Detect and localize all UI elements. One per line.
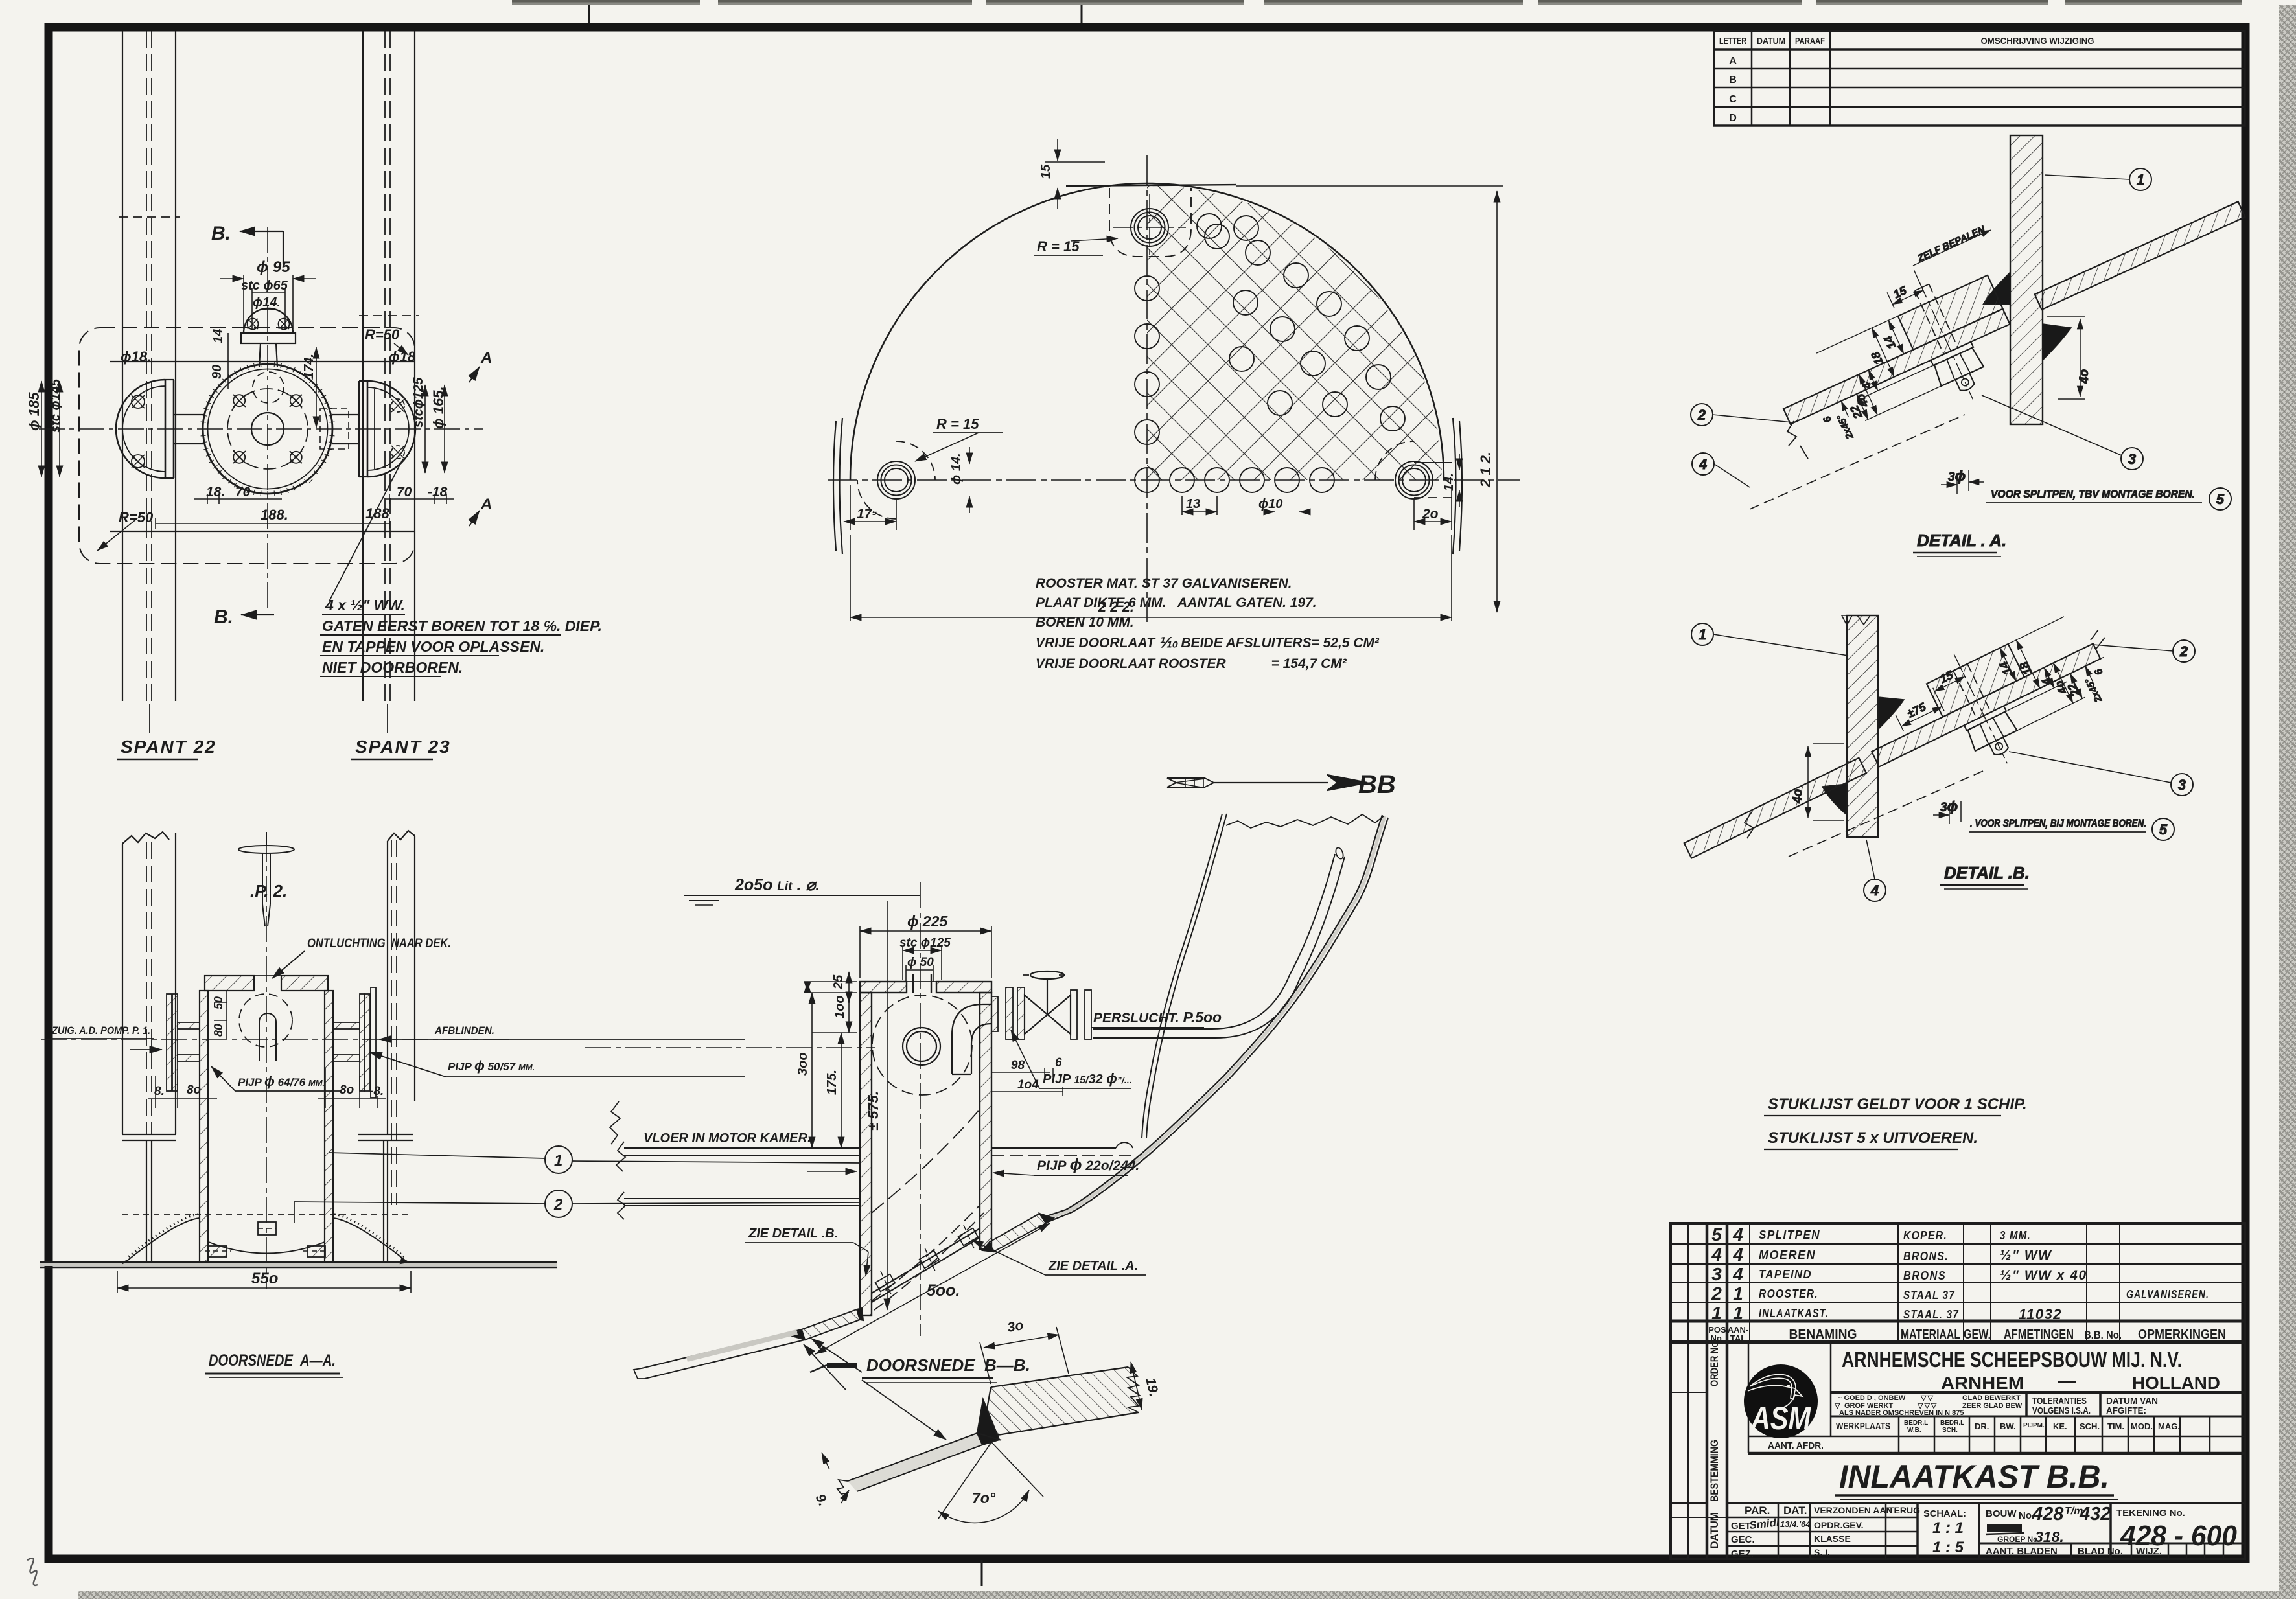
svg-text:14.: 14. (1442, 473, 1456, 491)
svg-text:ZIE DETAIL .B.: ZIE DETAIL .B. (748, 1226, 838, 1241)
svg-text:SPANT 23: SPANT 23 (355, 737, 451, 757)
svg-text:318.: 318. (2035, 1528, 2064, 1545)
svg-text:TIM.: TIM. (2107, 1421, 2124, 1431)
svg-text:SPANT 22: SPANT 22 (121, 737, 216, 757)
svg-text:TEKENING No.: TEKENING No. (2116, 1508, 2185, 1519)
svg-text:DETAIL . A.: DETAIL . A. (1917, 531, 2006, 550)
svg-text:STAAL 37: STAAL 37 (1903, 1289, 1955, 1302)
svg-text:WERKPLAATS: WERKPLAATS (1836, 1421, 1890, 1432)
svg-text:50: 50 (212, 996, 225, 1009)
svg-text:70: 70 (397, 485, 412, 500)
svg-text:BRONS: BRONS (1903, 1269, 1946, 1282)
svg-text:VOLGENS I.S.A.: VOLGENS I.S.A. (2032, 1405, 2091, 1416)
svg-text:ϕ 185: ϕ 185 (26, 392, 42, 431)
svg-text:DETAIL .B.: DETAIL .B. (1944, 863, 2030, 882)
svg-text:stc ϕ125: stc ϕ125 (899, 936, 951, 950)
svg-text:B.B. No.: B.B. No. (2084, 1329, 2122, 1341)
svg-text:ROOSTER MAT. ST 37 GALVANISERE: ROOSTER MAT. ST 37 GALVANISEREN. (1036, 576, 1292, 591)
svg-text:AANT. AFDR.: AANT. AFDR. (1768, 1440, 1824, 1451)
svg-text:PLAAT DIKTE 6 MM. AANTAL GAT: PLAAT DIKTE 6 MM. AANTAL GATEN. 197. (1036, 595, 1317, 610)
svg-text:BOUW: BOUW (1986, 1508, 2017, 1519)
svg-text:stcϕ125: stcϕ125 (412, 377, 426, 428)
svg-text:TAPEIND: TAPEIND (1759, 1268, 1812, 1281)
svg-text:2: 2 (2179, 643, 2188, 660)
svg-text:8.: 8. (154, 1085, 165, 1098)
svg-text:25: 25 (831, 974, 846, 990)
svg-text:BB: BB (1358, 770, 1396, 799)
svg-text:17⁵: 17⁵ (857, 507, 877, 522)
svg-text:2 1 2.: 2 1 2. (1478, 452, 1494, 488)
svg-text:± 575.: ± 575. (865, 1091, 881, 1131)
svg-text:BEDR.L: BEDR.L (1940, 1420, 1964, 1427)
svg-text:1 : 5: 1 : 5 (1932, 1539, 1964, 1556)
svg-text:2: 2 (1711, 1283, 1722, 1304)
svg-text:SCHAAL:: SCHAAL: (1923, 1508, 1966, 1519)
svg-text:BEDR.L: BEDR.L (1904, 1420, 1928, 1427)
svg-text:4o: 4o (1791, 789, 1805, 804)
svg-text:EN TAPPEN VOOR OPLASSEN.: EN TAPPEN VOOR OPLASSEN. (322, 638, 544, 655)
svg-text:4 x ½" WW.: 4 x ½" WW. (325, 597, 405, 614)
svg-text:PIJP ϕ 22o/244.: PIJP ϕ 22o/244. (1037, 1156, 1139, 1174)
svg-text:ARNHEM: ARNHEM (1941, 1373, 2024, 1393)
svg-text:R = 15: R = 15 (1037, 238, 1080, 255)
svg-text:ϕ 225: ϕ 225 (907, 913, 948, 930)
svg-text:. VOOR SPLITPEN, BIJ MONTAGE B: . VOOR SPLITPEN, BIJ MONTAGE BOREN. (1970, 817, 2146, 829)
svg-text:GEW.: GEW. (1964, 1328, 1991, 1342)
svg-text:.P. 2.: .P. 2. (250, 881, 287, 901)
svg-text:4: 4 (1732, 1225, 1743, 1245)
svg-text:R=50: R=50 (365, 327, 400, 343)
svg-text:ORDER No.: ORDER No. (1708, 1340, 1721, 1386)
svg-text:W.B.: W.B. (1907, 1427, 1921, 1434)
svg-text:3ϕ: 3ϕ (1940, 798, 1958, 814)
svg-text:4: 4 (1699, 456, 1707, 472)
svg-text:BESTEMMING: BESTEMMING (1708, 1440, 1721, 1502)
svg-text:PAR.: PAR. (1745, 1504, 1770, 1517)
svg-text:70: 70 (235, 485, 251, 500)
svg-text:GALVANISEREN.: GALVANISEREN. (2126, 1288, 2209, 1301)
svg-text:½" WW: ½" WW (2000, 1248, 2052, 1263)
svg-text:SCH.: SCH. (2080, 1421, 2100, 1431)
svg-text:KE.: KE. (2053, 1421, 2067, 1431)
svg-text:3: 3 (1711, 1264, 1722, 1284)
svg-text:BOREN 10 MM.: BOREN 10 MM. (1036, 615, 1134, 630)
svg-text:ZEER GLAD BEW: ZEER GLAD BEW (1962, 1402, 2023, 1410)
svg-text:AANT. BLADEN: AANT. BLADEN (1986, 1546, 2058, 1557)
svg-text:1 : 1: 1 : 1 (1932, 1519, 1964, 1537)
svg-text:ϕ18.: ϕ18. (121, 349, 151, 365)
svg-text:ALS NADER OMSCHREVEN IN N 875: ALS NADER OMSCHREVEN IN N 875 (1839, 1409, 1964, 1417)
svg-text:stc ϕ65: stc ϕ65 (241, 279, 288, 293)
svg-text:5: 5 (2159, 822, 2168, 838)
svg-text:188.: 188. (261, 507, 288, 523)
svg-text:HOLLAND: HOLLAND (2132, 1373, 2220, 1393)
svg-text:4: 4 (1711, 1245, 1722, 1265)
svg-text:-18: -18 (428, 485, 448, 500)
svg-text:ϕ10: ϕ10 (1258, 497, 1282, 511)
svg-text:ϕ 14.: ϕ 14. (949, 453, 964, 485)
svg-text:MOEREN: MOEREN (1759, 1248, 1816, 1261)
svg-text:DOORSNEDE B―B.: DOORSNEDE B―B. (866, 1355, 1030, 1375)
svg-text:3o: 3o (1006, 1318, 1025, 1335)
svg-text:SCH.: SCH. (1942, 1427, 1958, 1434)
svg-text:PERSLUCHT. P.5oo: PERSLUCHT. P.5oo (1093, 1009, 1222, 1026)
svg-text:3 MM.: 3 MM. (2000, 1229, 2031, 1242)
svg-text:S. I.: S. I. (1814, 1547, 1830, 1558)
svg-text:A: A (480, 349, 492, 367)
svg-text:VERZONDEN AAN: VERZONDEN AAN (1814, 1505, 1893, 1515)
svg-text:ϕ18: ϕ18 (389, 349, 416, 365)
svg-text:—: — (2058, 1370, 2076, 1390)
svg-text:DATUM: DATUM (1757, 36, 1785, 47)
svg-text:INLAATKAST.: INLAATKAST. (1759, 1307, 1829, 1320)
svg-text:OPMERKINGEN: OPMERKINGEN (2138, 1328, 2226, 1342)
svg-text:GROEP No: GROEP No (1997, 1535, 2037, 1544)
svg-text:4: 4 (1870, 882, 1879, 899)
svg-text:R=50: R=50 (119, 509, 154, 525)
svg-text:1: 1 (1699, 627, 1706, 643)
svg-text:MAG.: MAG. (2158, 1421, 2180, 1431)
svg-text:A: A (1729, 56, 1737, 67)
svg-text:▽▽: ▽▽ (1920, 1394, 1934, 1402)
svg-text:3oo: 3oo (796, 1052, 810, 1076)
svg-text:STUKLIJST 5 x UITVOEREN.: STUKLIJST 5 x UITVOEREN. (1768, 1129, 1978, 1147)
svg-text:5: 5 (2216, 491, 2225, 507)
svg-text:2: 2 (553, 1196, 563, 1214)
svg-text:11032: 11032 (2019, 1306, 2062, 1322)
svg-text:1: 1 (2137, 172, 2144, 188)
svg-text:7o°: 7o° (972, 1490, 996, 1506)
svg-text:AFBLINDEN.: AFBLINDEN. (434, 1024, 494, 1037)
svg-text:VRIJE DOORLAAT ROOSTER: VRIJE DOORLAAT ROOSTER = 154,7 CM² (1036, 656, 1347, 671)
svg-text:8o: 8o (340, 1083, 354, 1097)
svg-text:ZUIG. A.D. POMP. P. 1.: ZUIG. A.D. POMP. P. 1. (51, 1024, 150, 1037)
svg-text:GEC.: GEC. (1731, 1534, 1755, 1545)
svg-text:stc ϕ145: stc ϕ145 (49, 378, 63, 433)
svg-text:1: 1 (554, 1152, 562, 1169)
svg-text:GET: GET (1731, 1521, 1751, 1532)
svg-text:GATEN EERST BOREN TOT 18 ℅. DI: GATEN EERST BOREN TOT 18 ℅. DIEP. (322, 617, 602, 634)
svg-text:ϕ 50: ϕ 50 (907, 956, 934, 969)
svg-text:VLOER IN MOTOR KAMER.: VLOER IN MOTOR KAMER. (644, 1131, 811, 1145)
svg-text:BENAMING: BENAMING (1789, 1328, 1857, 1342)
svg-text:BRONS.: BRONS. (1903, 1250, 1949, 1263)
svg-text:18.: 18. (206, 485, 225, 500)
svg-text:13/4.'64: 13/4.'64 (1780, 1519, 1811, 1529)
svg-text:MATERIAAL: MATERIAAL (1901, 1328, 1960, 1342)
svg-text:175.: 175. (825, 1070, 839, 1095)
svg-text:8o: 8o (187, 1083, 201, 1097)
svg-text:BLAD No.: BLAD No. (2078, 1546, 2123, 1557)
svg-text:TERUG: TERUG (1888, 1505, 1920, 1515)
svg-text:OPDR.GEV.: OPDR.GEV. (1814, 1520, 1864, 1530)
svg-text:4: 4 (1732, 1264, 1743, 1284)
svg-text:GLAD BEWERKT: GLAD BEWERKT (1962, 1394, 2021, 1402)
svg-text:4o: 4o (2078, 369, 2091, 384)
svg-text:DR.: DR. (1975, 1421, 1989, 1431)
svg-text:A: A (480, 496, 492, 513)
svg-text:1: 1 (1733, 1303, 1743, 1323)
svg-text:R = 15: R = 15 (936, 416, 979, 432)
svg-text:2: 2 (1697, 407, 1706, 423)
svg-text:-8.: -8. (369, 1085, 384, 1098)
svg-text:C: C (1729, 94, 1737, 105)
svg-text:1oo: 1oo (833, 995, 847, 1018)
svg-text:▽▽▽: ▽▽▽ (1917, 1402, 1938, 1410)
svg-text:ARNHEMSCHE SCHEEPSBOUW MIJ. N.: ARNHEMSCHE SCHEEPSBOUW MIJ. N.V. (1842, 1348, 2182, 1372)
svg-text:NIET DOORBOREN.: NIET DOORBOREN. (322, 659, 463, 676)
svg-text:55o: 55o (251, 1270, 278, 1287)
svg-text:½" WW x 40: ½" WW x 40 (2000, 1268, 2087, 1283)
svg-text:DOORSNEDE A―A.: DOORSNEDE A―A. (209, 1352, 336, 1370)
svg-text:174.: 174. (302, 354, 316, 379)
svg-text:ZIE DETAIL .A.: ZIE DETAIL .A. (1048, 1259, 1138, 1273)
svg-text:3: 3 (2128, 451, 2136, 467)
svg-text:4: 4 (1732, 1245, 1743, 1265)
svg-text:1: 1 (1711, 1303, 1722, 1323)
svg-text:B: B (1729, 75, 1737, 86)
svg-text:3ϕ: 3ϕ (1948, 468, 1966, 484)
svg-text:BW.: BW. (2000, 1421, 2016, 1431)
svg-text:~ GOED D , ONBEW: ~ GOED D , ONBEW (1838, 1394, 1906, 1402)
svg-text:80: 80 (212, 1024, 225, 1037)
svg-text:2o: 2o (1422, 507, 1439, 522)
svg-text:INLAATKAST B.B.: INLAATKAST B.B. (1839, 1458, 2109, 1495)
svg-text:13: 13 (1186, 497, 1200, 511)
svg-text:VOOR SPLITPEN, TBV MONTAGE BOR: VOOR SPLITPEN, TBV MONTAGE BOREN. (1991, 488, 2195, 500)
svg-text:432: 432 (2079, 1504, 2111, 1524)
svg-text:ROOSTER.: ROOSTER. (1759, 1287, 1818, 1300)
svg-text:1: 1 (1733, 1283, 1743, 1304)
svg-text:AFGIFTE:: AFGIFTE: (2106, 1405, 2146, 1416)
svg-text:2o5o Lit . ⌀.: 2o5o Lit . ⌀. (734, 876, 820, 894)
svg-text:6: 6 (1055, 1056, 1062, 1070)
svg-text:DATUM: DATUM (1708, 1512, 1721, 1548)
svg-text:15: 15 (1039, 164, 1053, 179)
svg-text:428 - 600: 428 - 600 (2120, 1520, 2237, 1552)
svg-text:LETTER: LETTER (1719, 36, 1746, 47)
svg-text:GEZ.: GEZ. (1731, 1548, 1754, 1559)
svg-text:3: 3 (2178, 777, 2186, 793)
svg-text:428: 428 (2032, 1504, 2064, 1524)
svg-text:AFMETINGEN: AFMETINGEN (2004, 1328, 2074, 1342)
svg-text:STAAL. 37: STAAL. 37 (1903, 1308, 1959, 1321)
svg-text:STUKLIJST GELDT VOOR 1 SCHIP.: STUKLIJST GELDT VOOR 1 SCHIP. (1768, 1096, 2027, 1113)
svg-text:VRIJE DOORLAAT ⅒ BEIDE AFSLUIT: VRIJE DOORLAAT ⅒ BEIDE AFSLUITERS= 52,5 … (1036, 636, 1380, 650)
svg-text:B.: B. (211, 223, 231, 244)
svg-text:▽: ▽ (1834, 1402, 1840, 1410)
svg-text:ϕ 95: ϕ 95 (257, 259, 290, 276)
svg-text:90: 90 (210, 365, 224, 379)
svg-text:ONTLUCHTING NAAR DEK.: ONTLUCHTING NAAR DEK. (307, 937, 451, 950)
svg-text:D: D (1729, 113, 1737, 124)
svg-text:DAT.: DAT. (1783, 1504, 1807, 1517)
svg-text:PIJPM.: PIJPM. (2023, 1422, 2045, 1429)
svg-text:KOPER.: KOPER. (1903, 1229, 1947, 1242)
svg-text:KLASSE: KLASSE (1814, 1534, 1851, 1544)
svg-text:98: 98 (1011, 1059, 1025, 1072)
svg-text:14.: 14. (211, 325, 226, 343)
svg-text:OMSCHRIJVING WIJZIGING: OMSCHRIJVING WIJZIGING (1981, 36, 2094, 47)
svg-text:B.: B. (214, 606, 233, 628)
svg-text:ϕ14.: ϕ14. (253, 295, 281, 310)
svg-text:5oo.: 5oo. (927, 1282, 960, 1300)
svg-text:ASM: ASM (1750, 1400, 1811, 1436)
svg-text:SPLITPEN: SPLITPEN (1759, 1228, 1820, 1241)
svg-text:PARAAF: PARAAF (1795, 36, 1825, 47)
svg-text:MOD.: MOD. (2131, 1421, 2153, 1431)
svg-text:5: 5 (1711, 1225, 1722, 1245)
